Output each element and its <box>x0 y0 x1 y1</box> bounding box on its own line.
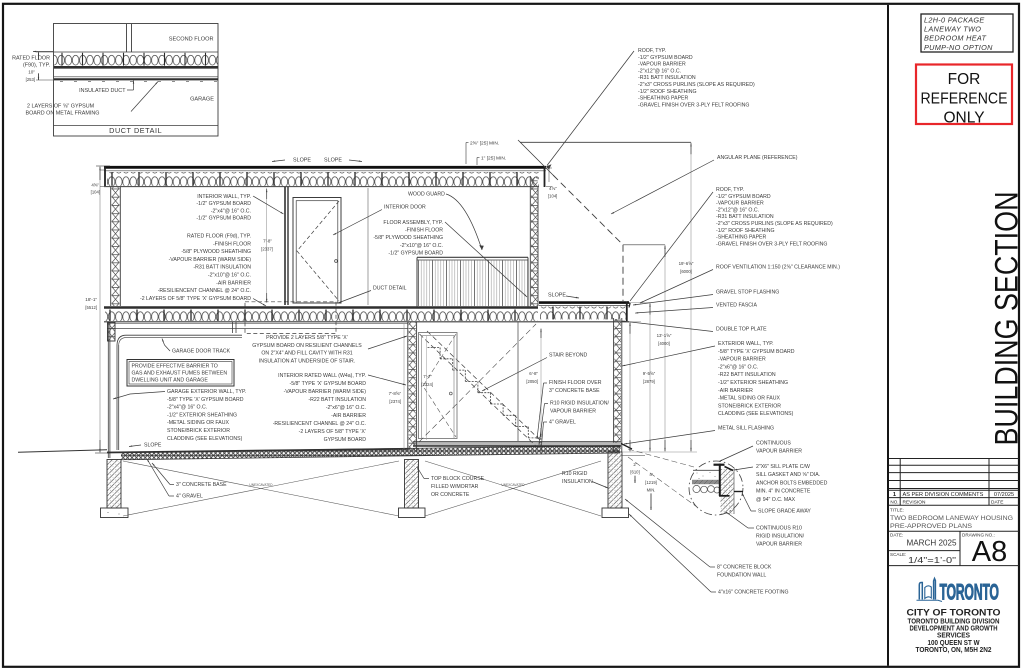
svg-text:-1/2" GYPSUM BOARD: -1/2" GYPSUM BOARD <box>196 201 251 207</box>
svg-text:-R31 BATT INSULATION: -R31 BATT INSULATION <box>193 265 251 271</box>
svg-text:[253]: [253] <box>26 77 35 82</box>
svg-text:-GRAVEL FINISH OVER 3-PLY FELT: -GRAVEL FINISH OVER 3-PLY FELT ROOFING <box>638 102 749 108</box>
svg-text:[6000]: [6000] <box>680 269 692 274</box>
svg-text:-2 LAYERS OF 5/8" TYPE ’X’: -2 LAYERS OF 5/8" TYPE ’X’ <box>299 429 366 435</box>
svg-text:DATE: DATE <box>991 499 1003 505</box>
svg-text:PUMP-NO OPTION: PUMP-NO OPTION <box>924 43 993 52</box>
svg-text:INTERIOR WALL, TYP.: INTERIOR WALL, TYP. <box>197 194 251 200</box>
svg-text:BEDROOM HEAT: BEDROOM HEAT <box>924 34 986 43</box>
svg-text:ROOF VENTILATION 1:150 (2⅝" CL: ROOF VENTILATION 1:150 (2⅝" CLEARANCE MI… <box>716 265 840 271</box>
svg-text:7'-8″: 7'-8″ <box>263 239 272 244</box>
svg-text:-VAPOUR BARRIER (WARM SIDE): -VAPOUR BARRIER (WARM SIDE) <box>284 389 367 395</box>
svg-text:PROVIDE EFFECTIVE BARRIER TO: PROVIDE EFFECTIVE BARRIER TO <box>132 364 218 370</box>
svg-text:TORONTO BUILDING DIVISION: TORONTO BUILDING DIVISION <box>908 618 1000 625</box>
svg-text:DOUBLE TOP PLATE: DOUBLE TOP PLATE <box>716 327 767 333</box>
svg-text:-AIR BARRIER: -AIR BARRIER <box>718 388 753 394</box>
svg-text:07/2025: 07/2025 <box>994 492 1014 498</box>
svg-text:GARAGE: GARAGE <box>190 97 214 103</box>
svg-text:ROOF, TYP.: ROOF, TYP. <box>716 187 744 193</box>
svg-text:RIGID INSULATION/: RIGID INSULATION/ <box>756 534 805 540</box>
svg-text:[4000]: [4000] <box>658 341 670 346</box>
svg-text:-FINISH FLOOR: -FINISH FLOOR <box>405 228 443 234</box>
svg-text:STONE/BRICK EXTERIOR: STONE/BRICK EXTERIOR <box>718 403 781 409</box>
svg-text:[610]: [610] <box>630 470 639 475</box>
svg-text:LANEWAY TWO: LANEWAY TWO <box>924 25 981 34</box>
svg-text:GARAGE EXTERIOR WALL, TYP.: GARAGE EXTERIOR WALL, TYP. <box>167 389 246 395</box>
svg-text:1" [25] MIN.: 1" [25] MIN. <box>481 156 506 162</box>
svg-text:FLOOR ASSEMBLY, TYP.: FLOOR ASSEMBLY, TYP. <box>383 220 443 226</box>
svg-text:[5512]: [5512] <box>85 305 97 310</box>
svg-text:TITLE:: TITLE: <box>890 508 904 513</box>
svg-text:MIN. 4" IN CONCRETE: MIN. 4" IN CONCRETE <box>756 489 811 495</box>
svg-text:FINISH FLOOR OVER: FINISH FLOOR OVER <box>549 380 602 386</box>
svg-text:-1/2" GYPSUM BOARD: -1/2" GYPSUM BOARD <box>196 216 251 222</box>
svg-text:-VAPOUR BARRIER: -VAPOUR BARRIER <box>638 62 686 68</box>
svg-text:[2337]: [2337] <box>261 247 273 252</box>
svg-text:-VAPOUR BARRIER (WARM SIDE): -VAPOUR BARRIER (WARM SIDE) <box>169 257 252 263</box>
svg-text:-5/8" TYPE ’X’ GYPSUM BOARD: -5/8" TYPE ’X’ GYPSUM BOARD <box>289 381 366 387</box>
svg-text:-2"x3" CROSS PURLINS (SLOPE AS: -2"x3" CROSS PURLINS (SLOPE AS REQUIRED) <box>716 221 833 227</box>
svg-text:100 QUEEN ST W: 100 QUEEN ST W <box>928 640 980 647</box>
svg-text:-2"x3" CROSS PURLINS (SLOPE AS: -2"x3" CROSS PURLINS (SLOPE AS REQUIRED) <box>638 82 755 88</box>
svg-text:[1219]: [1219] <box>645 480 657 485</box>
svg-text:-1/2" GYPSUM BOARD: -1/2" GYPSUM BOARD <box>638 55 693 61</box>
svg-text:GARAGE DOOR TRACK: GARAGE DOOR TRACK <box>172 349 231 355</box>
svg-text:MIN.: MIN. <box>647 488 656 493</box>
svg-text:-1/2" GYPSUM BOARD: -1/2" GYPSUM BOARD <box>388 250 443 256</box>
svg-text:FILLED W/MORTAR: FILLED W/MORTAR <box>431 484 479 490</box>
svg-text:8" CONCRETE BLOCK: 8" CONCRETE BLOCK <box>717 565 772 571</box>
svg-text:DEVELOPMENT AND GROWTH: DEVELOPMENT AND GROWTH <box>910 626 998 633</box>
svg-text:3" CONCRETE BASE: 3" CONCRETE BASE <box>549 388 600 394</box>
svg-text:GRAVEL STOP FLASHING: GRAVEL STOP FLASHING <box>716 290 779 296</box>
svg-text:ON 2"X4" AND FILL CAVITY WITH: ON 2"X4" AND FILL CAVITY WITH R31 <box>261 351 352 357</box>
svg-text:L2H-0 PACKAGE: L2H-0 PACKAGE <box>924 15 985 24</box>
svg-text:NO.: NO. <box>890 499 898 504</box>
svg-text:FOR: FOR <box>948 71 981 88</box>
svg-text:ANGULAR PLANE (REFERENCE): ANGULAR PLANE (REFERENCE) <box>717 155 798 161</box>
svg-text:-5/8" PLYWOOD SHEATHING: -5/8" PLYWOOD SHEATHING <box>181 249 251 255</box>
svg-text:-2"x12"@ 16" O.C.: -2"x12"@ 16" O.C. <box>716 207 759 213</box>
svg-text:-5/8" TYPE ’X’ GYPSUM BOARD: -5/8" TYPE ’X’ GYPSUM BOARD <box>167 397 244 403</box>
svg-text:CITY OF TORONTO: CITY OF TORONTO <box>907 608 1002 619</box>
svg-text:4" GRAVEL: 4" GRAVEL <box>176 494 203 500</box>
svg-text:CLADDING (SEE ELEVATIONS): CLADDING (SEE ELEVATIONS) <box>167 436 243 442</box>
svg-text:-5/8" PLYWOOD SHEATHING: -5/8" PLYWOOD SHEATHING <box>373 235 443 241</box>
svg-text:13'-1⅝″: 13'-1⅝″ <box>657 333 672 338</box>
svg-text:-1/2" GYPSUM BOARD: -1/2" GYPSUM BOARD <box>716 194 771 200</box>
svg-text:REFERENCE: REFERENCE <box>921 91 1008 108</box>
svg-text:-R31 BATT INSULATION: -R31 BATT INSULATION <box>716 214 774 220</box>
svg-text:10": 10" <box>28 70 35 75</box>
svg-text:R10 RIGID INSULATION/: R10 RIGID INSULATION/ <box>550 401 610 407</box>
svg-text:OR CONCRETE: OR CONCRETE <box>431 492 470 498</box>
svg-text:UNEXCAVATED: UNEXCAVATED <box>249 483 273 487</box>
svg-text:GYPSUM BOARD: GYPSUM BOARD <box>324 437 367 443</box>
svg-text:SLOPE: SLOPE <box>144 442 162 448</box>
svg-text:STONE/BRICK EXTERIOR: STONE/BRICK EXTERIOR <box>167 428 230 434</box>
svg-text:-METAL SIDING OR FAUX: -METAL SIDING OR FAUX <box>167 420 230 426</box>
svg-text:STAIR BEYOND: STAIR BEYOND <box>549 353 587 359</box>
svg-text:-RESILIENCENT CHANNEL @ 24" O.: -RESILIENCENT CHANNEL @ 24" O.C. <box>158 288 251 294</box>
svg-text:REVISION: REVISION <box>903 499 926 505</box>
svg-text:SCALE:: SCALE: <box>890 552 906 557</box>
svg-text:CONTINUOUS: CONTINUOUS <box>756 441 791 447</box>
svg-text:[104]: [104] <box>91 190 100 195</box>
svg-text:7'-8⅝″: 7'-8⅝″ <box>389 391 402 396</box>
svg-text:4" GRAVEL: 4" GRAVEL <box>549 420 576 426</box>
svg-text:-AIR BARRIER: -AIR BARRIER <box>216 280 251 286</box>
svg-text:RATED FLOOR (F9d), TYP.: RATED FLOOR (F9d), TYP. <box>187 234 251 240</box>
svg-text:4"x16" CONCRETE FOOTING: 4"x16" CONCRETE FOOTING <box>718 590 789 596</box>
svg-text:[2050]: [2050] <box>526 379 538 384</box>
svg-text:VAPOUR BARRIER: VAPOUR BARRIER <box>756 449 802 455</box>
svg-text:18'-1″: 18'-1″ <box>85 297 97 302</box>
svg-text:BUILDING SECTION: BUILDING SECTION <box>989 192 1024 446</box>
svg-text:[2324]: [2324] <box>421 382 433 387</box>
svg-text:DUCT DETAIL: DUCT DETAIL <box>109 126 162 135</box>
svg-text:-GRAVEL FINISH OVER 3-PLY FELT: -GRAVEL FINISH OVER 3-PLY FELT ROOFING <box>716 241 827 247</box>
svg-text:(F90), TYP.: (F90), TYP. <box>23 63 50 69</box>
svg-text:VENTED FASCIA: VENTED FASCIA <box>716 303 757 309</box>
svg-text:TWO BEDROOM LANEWAY HOUSING: TWO BEDROOM LANEWAY HOUSING <box>890 515 1013 522</box>
svg-text:[2374]: [2374] <box>389 399 401 404</box>
svg-text:SLOPE: SLOPE <box>548 293 566 299</box>
svg-text:WOOD GUARD: WOOD GUARD <box>408 192 445 198</box>
svg-text:-VAPOUR BARRIER: -VAPOUR BARRIER <box>718 357 766 363</box>
svg-text:UNEXCAVATED: UNEXCAVATED <box>501 483 525 487</box>
svg-text:SLOPE GRADE AWAY: SLOPE GRADE AWAY <box>758 509 811 515</box>
svg-text:-2"x10"@ 16" O.C.: -2"x10"@ 16" O.C. <box>208 273 251 279</box>
svg-text:-2"x12"@ 16" O.C.: -2"x12"@ 16" O.C. <box>638 68 681 74</box>
svg-text:DWELLING UNIT AND GARAGE: DWELLING UNIT AND GARAGE <box>132 378 209 384</box>
svg-text:-AIR BARRIER: -AIR BARRIER <box>331 413 366 419</box>
svg-text:SERVICES: SERVICES <box>937 633 970 640</box>
svg-text:GYPSUM BOARD ON RESILIENT CHAN: GYPSUM BOARD ON RESILIENT CHANNELS <box>252 343 362 349</box>
svg-text:CLADDING (SEE ELEVATIONS): CLADDING (SEE ELEVATIONS) <box>718 411 794 417</box>
svg-text:6'-8″: 6'-8″ <box>529 371 538 376</box>
svg-text:2 LAYERS OF ⅝" GYPSUM: 2 LAYERS OF ⅝" GYPSUM <box>27 104 95 110</box>
svg-text:-1/2" ROOF SHEATHING: -1/2" ROOF SHEATHING <box>638 89 697 95</box>
svg-text:@ 94" O.C. MAX: @ 94" O.C. MAX <box>756 497 796 503</box>
svg-text:-2"x6"@ 16" O.C.: -2"x6"@ 16" O.C. <box>718 364 758 370</box>
svg-text:INSULATION AT UNDERSIDE OF STA: INSULATION AT UNDERSIDE OF STAIR. <box>259 358 355 364</box>
svg-text:INTERIOR DOOR: INTERIOR DOOR <box>384 205 426 211</box>
svg-text:-RESILIENCENT CHANNEL @ 24" O.: -RESILIENCENT CHANNEL @ 24" O.C. <box>273 421 366 427</box>
svg-text:PRE-APPROVED PLANS: PRE-APPROVED PLANS <box>890 523 972 530</box>
svg-text:-METAL SIDING OR FAUX: -METAL SIDING OR FAUX <box>718 396 781 402</box>
svg-text:TOP BLOCK COURSE: TOP BLOCK COURSE <box>431 476 485 482</box>
svg-text:-VAPOUR BARRIER: -VAPOUR BARRIER <box>716 201 764 207</box>
svg-text:-1/2" EXTERIOR SHEATHING: -1/2" EXTERIOR SHEATHING <box>718 380 788 386</box>
svg-text:CONTINUOUS R10: CONTINUOUS R10 <box>756 526 802 532</box>
svg-text:EXTERIOR WALL, TYP.: EXTERIOR WALL, TYP. <box>718 341 774 347</box>
svg-text:MARCH 2025: MARCH 2025 <box>907 539 958 548</box>
svg-text:9'-5⅝″: 9'-5⅝″ <box>643 371 656 376</box>
svg-text:INSULATED DUCT: INSULATED DUCT <box>79 88 126 94</box>
svg-text:2⅝" [25] MIN.: 2⅝" [25] MIN. <box>470 141 499 147</box>
svg-text:ONLY: ONLY <box>943 110 984 127</box>
svg-text:PROVIDE 2 LAYERS 5/8" TYPE ’X’: PROVIDE 2 LAYERS 5/8" TYPE ’X’ <box>266 335 348 341</box>
svg-text:-R22 BATT INSULATION: -R22 BATT INSULATION <box>308 397 366 403</box>
svg-text:-FINISH FLOOR: -FINISH FLOOR <box>213 241 251 247</box>
svg-text:19'-6⅝″: 19'-6⅝″ <box>679 261 694 266</box>
svg-text:INTERIOR RATED WALL (W4a), TYP: INTERIOR RATED WALL (W4a), TYP. <box>278 373 366 379</box>
svg-text:-1/2" EXTERIOR SHEATHING: -1/2" EXTERIOR SHEATHING <box>167 412 237 418</box>
svg-text:FOUNDATION WALL: FOUNDATION WALL <box>717 573 766 579</box>
svg-text:3" CONCRETE BASE: 3" CONCRETE BASE <box>176 482 227 488</box>
svg-text:TORONTO, ON, M5H 2N2: TORONTO, ON, M5H 2N2 <box>916 647 992 654</box>
svg-text:A8: A8 <box>972 536 1007 568</box>
svg-text:-2"x6"@ 16" O.C.: -2"x6"@ 16" O.C. <box>326 405 366 411</box>
svg-text:-R31 BATT INSULATION: -R31 BATT INSULATION <box>638 75 696 81</box>
svg-text:SLOPE: SLOPE <box>324 158 342 164</box>
svg-text:-1/2" ROOF SHEATHING: -1/2" ROOF SHEATHING <box>716 228 775 234</box>
svg-text:4⅝": 4⅝" <box>91 183 99 188</box>
svg-text:DATE:: DATE: <box>890 533 903 538</box>
svg-text:INSULATION: INSULATION <box>562 479 593 485</box>
svg-text:VAPOUR BARRIER: VAPOUR BARRIER <box>550 409 596 415</box>
svg-text:SLOPE: SLOPE <box>293 158 311 164</box>
svg-text:-2"x4"@ 16" O.C.: -2"x4"@ 16" O.C. <box>167 405 207 411</box>
svg-text:RATED FLOOR: RATED FLOOR <box>12 56 50 62</box>
svg-text:-SHEATHING PAPER: -SHEATHING PAPER <box>638 96 689 102</box>
svg-text:-2"x4"@ 16" O.C.: -2"x4"@ 16" O.C. <box>211 208 251 214</box>
svg-text:BOARD ON METAL FRAMING: BOARD ON METAL FRAMING <box>26 111 100 117</box>
svg-text:VAPOUR BARRIER: VAPOUR BARRIER <box>756 542 802 548</box>
svg-text:[2879]: [2879] <box>643 379 655 384</box>
svg-text:ROOF, TYP.: ROOF, TYP. <box>638 48 666 54</box>
svg-text:AS PER DIVISION COMMENTS: AS PER DIVISION COMMENTS <box>903 492 984 498</box>
svg-text:[104]: [104] <box>548 194 557 199</box>
svg-text:7'-7″: 7'-7″ <box>423 374 432 379</box>
svg-text:1/4"=1’-0": 1/4"=1’-0" <box>908 556 956 565</box>
svg-text:ANCHOR BOLTS EMBEDDED: ANCHOR BOLTS EMBEDDED <box>756 480 828 486</box>
svg-text:-2"x10"@ 16" O.C.: -2"x10"@ 16" O.C. <box>400 243 443 249</box>
svg-text:SILL GASKET AND ⅝" DIA.: SILL GASKET AND ⅝" DIA. <box>756 472 820 478</box>
svg-text:SECOND FLOOR: SECOND FLOOR <box>169 37 214 43</box>
svg-text:GAS AND EXHAUST FUMES BETWEEN: GAS AND EXHAUST FUMES BETWEEN <box>132 371 228 377</box>
svg-text:DUCT DETAIL: DUCT DETAIL <box>373 286 407 292</box>
svg-text:TORONTO: TORONTO <box>940 580 1000 605</box>
svg-text:METAL SILL FLASHING: METAL SILL FLASHING <box>718 426 774 432</box>
svg-text:-2 LAYERS OF 5/8" TYPE ’X’ GYP: -2 LAYERS OF 5/8" TYPE ’X’ GYPSUM BOARD <box>140 296 251 302</box>
svg-text:-5/8" TYPE ’X’ GYPSUM BOARD: -5/8" TYPE ’X’ GYPSUM BOARD <box>718 349 795 355</box>
svg-text:2"X6" SILL PLATE C/W: 2"X6" SILL PLATE C/W <box>756 464 810 470</box>
svg-text:R10 RIGID: R10 RIGID <box>562 471 588 477</box>
svg-text:-SHEATHING PAPER: -SHEATHING PAPER <box>716 235 767 241</box>
svg-text:-R22 BATT INSULATION: -R22 BATT INSULATION <box>718 372 776 378</box>
